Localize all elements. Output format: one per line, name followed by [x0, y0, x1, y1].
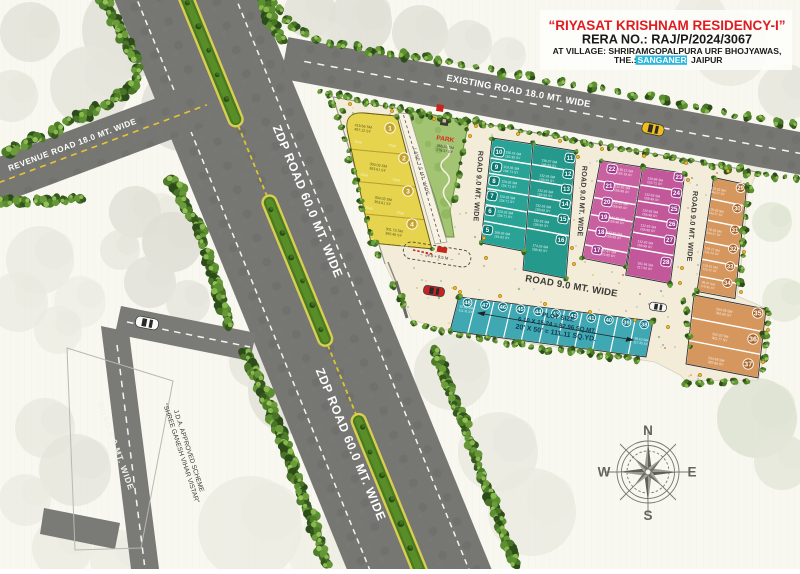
svg-text:12: 12 [565, 171, 572, 178]
svg-text:N: N [643, 423, 653, 438]
svg-text:41: 41 [588, 316, 595, 322]
svg-text:6: 6 [488, 208, 492, 215]
svg-text:2: 2 [402, 155, 406, 162]
svg-text:3: 3 [406, 188, 410, 195]
svg-text:4: 4 [410, 221, 414, 228]
svg-text:28: 28 [663, 259, 670, 266]
svg-text:39: 39 [623, 320, 630, 326]
svg-text:36: 36 [749, 337, 757, 344]
svg-text:47: 47 [482, 303, 488, 309]
svg-text:19: 19 [601, 214, 608, 221]
svg-text:15: 15 [560, 216, 567, 223]
svg-text:31: 31 [732, 228, 739, 234]
svg-text:26: 26 [669, 221, 676, 228]
svg-text:14: 14 [562, 201, 569, 208]
svg-text:7: 7 [490, 193, 494, 200]
svg-text:13: 13 [563, 186, 570, 193]
svg-text:37: 37 [744, 362, 752, 369]
svg-text:5: 5 [486, 227, 490, 234]
svg-text:THE.:: THE.: [614, 55, 637, 65]
svg-text:W: W [598, 465, 611, 480]
svg-text:44: 44 [535, 309, 542, 315]
svg-text:8: 8 [492, 178, 496, 185]
svg-text:11: 11 [567, 155, 574, 162]
svg-text:JAIPUR: JAIPUR [691, 55, 723, 65]
svg-text:20: 20 [604, 199, 611, 206]
svg-text:10: 10 [496, 149, 503, 156]
svg-text:“RIYASAT KRISHNAM RESIDENCY-I”: “RIYASAT KRISHNAM RESIDENCY-I” [548, 18, 785, 33]
svg-text:16: 16 [558, 237, 565, 244]
svg-text:RERA NO.: RAJ/P/2024/3067: RERA NO.: RAJ/P/2024/3067 [582, 33, 752, 47]
svg-text:35: 35 [754, 311, 762, 318]
svg-text:SANGANER,: SANGANER, [638, 55, 690, 65]
svg-text:1: 1 [388, 125, 392, 132]
svg-text:33: 33 [727, 265, 734, 271]
svg-text:45: 45 [517, 307, 524, 313]
svg-text:27: 27 [666, 237, 673, 244]
svg-text:S: S [643, 508, 652, 523]
svg-text:34: 34 [724, 281, 731, 287]
svg-text:38: 38 [641, 323, 648, 329]
svg-text:22: 22 [609, 166, 616, 173]
svg-text:30: 30 [734, 207, 741, 213]
svg-text:32: 32 [730, 247, 737, 253]
svg-text:40: 40 [606, 318, 612, 324]
svg-text:21: 21 [606, 183, 613, 190]
svg-text:E: E [687, 465, 696, 480]
svg-text:18: 18 [598, 229, 605, 236]
svg-text:46: 46 [500, 305, 507, 311]
svg-text:25: 25 [671, 206, 678, 213]
svg-text:29: 29 [737, 186, 744, 192]
svg-text:23: 23 [676, 174, 683, 181]
svg-text:24: 24 [673, 190, 680, 197]
svg-text:9: 9 [495, 164, 499, 171]
